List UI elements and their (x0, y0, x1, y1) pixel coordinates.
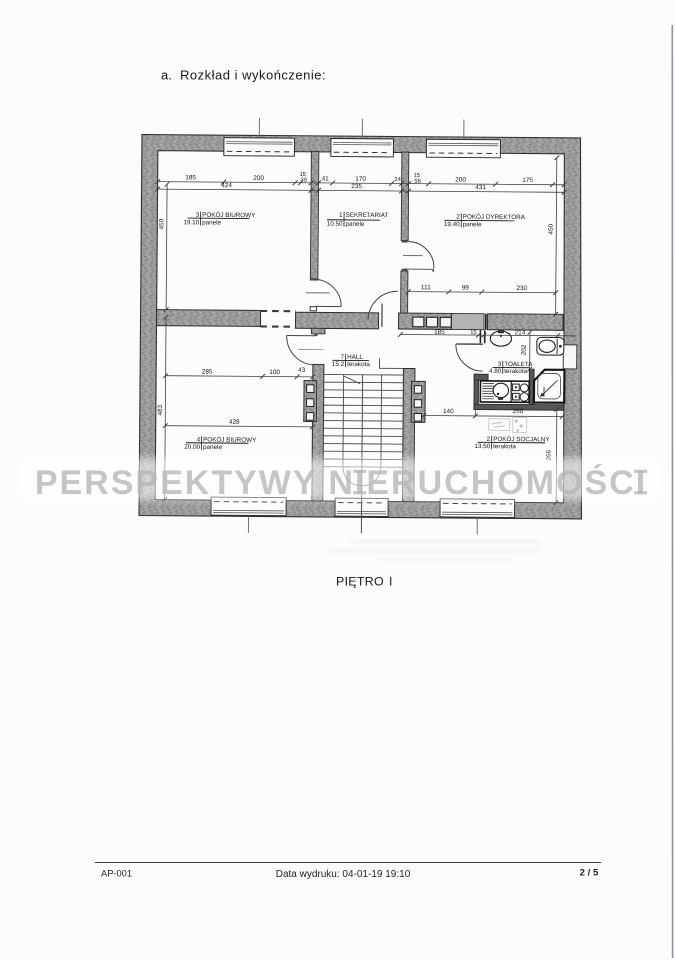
svg-text:140: 140 (443, 408, 454, 415)
svg-text:terakota: terakota (347, 361, 370, 368)
svg-text:POKÓJ BIUROWY: POKÓJ BIUROWY (202, 210, 256, 219)
svg-text:285: 285 (202, 368, 213, 375)
svg-text:panele: panele (463, 221, 482, 228)
svg-text:99: 99 (462, 285, 470, 292)
svg-text:POKÓJ BIUROWY: POKÓJ BIUROWY (203, 434, 257, 443)
svg-text:13.50: 13.50 (474, 443, 490, 450)
svg-text:POKÓJ SOCJALNY: POKÓJ SOCJALNY (493, 434, 550, 443)
svg-text:230: 230 (516, 285, 527, 292)
svg-text:terakota: terakota (493, 443, 516, 450)
svg-text:235: 235 (351, 183, 362, 190)
svg-text:450: 450 (548, 223, 555, 234)
svg-text:terakota: terakota (504, 368, 527, 375)
svg-text:a.: a. (161, 68, 172, 83)
svg-text:10.50: 10.50 (327, 221, 343, 228)
svg-text:483: 483 (157, 404, 164, 415)
svg-text:450: 450 (158, 218, 165, 229)
svg-text:1: 1 (339, 212, 343, 219)
svg-text:170: 170 (355, 176, 366, 183)
svg-text:428: 428 (229, 419, 240, 426)
svg-text:200: 200 (253, 175, 264, 182)
svg-text:19.40: 19.40 (444, 221, 460, 228)
svg-text:15.2: 15.2 (332, 361, 345, 368)
svg-text:185: 185 (434, 329, 445, 336)
svg-text:111: 111 (421, 284, 431, 291)
svg-text:PERSPEKTYWY NIERUCHOMOŚCI: PERSPEKTYWY NIERUCHOMOŚCI (35, 464, 647, 502)
svg-text:20.00: 20.00 (184, 444, 200, 451)
svg-text:panele: panele (345, 221, 364, 228)
svg-text:43: 43 (298, 367, 306, 374)
svg-text:7: 7 (341, 354, 345, 361)
svg-text:424: 424 (221, 182, 232, 189)
svg-text:HALL: HALL (347, 354, 363, 361)
svg-text:214: 214 (515, 329, 526, 336)
svg-text:19.10: 19.10 (183, 219, 199, 226)
svg-text:185: 185 (185, 174, 196, 181)
svg-text:41: 41 (322, 175, 330, 182)
svg-text:Data wydruku: 04-01-19 19:10: Data wydruku: 04-01-19 19:10 (276, 869, 411, 880)
svg-text:panele: panele (203, 444, 222, 451)
svg-text:250: 250 (512, 408, 523, 415)
svg-text:Rozkład i wykończenie:: Rozkład i wykończenie: (180, 68, 326, 83)
svg-text:24: 24 (394, 177, 401, 183)
svg-text:2 / 5: 2 / 5 (580, 868, 599, 879)
svg-text:175: 175 (522, 177, 533, 184)
svg-text:3: 3 (498, 361, 502, 368)
svg-text:2: 2 (487, 436, 491, 443)
svg-text:4.80: 4.80 (489, 368, 502, 375)
svg-text:SEKRETARIAT: SEKRETARIAT (346, 212, 389, 219)
svg-text:AP-001: AP-001 (101, 869, 132, 879)
svg-text:panele: panele (202, 219, 221, 226)
svg-text:200: 200 (455, 176, 466, 183)
svg-text:2: 2 (456, 214, 460, 221)
svg-text:15: 15 (470, 330, 477, 336)
svg-text:39: 39 (300, 178, 307, 184)
svg-text:202: 202 (521, 344, 528, 355)
svg-text:431: 431 (475, 184, 486, 191)
svg-text:56: 56 (414, 179, 421, 185)
svg-text:100: 100 (269, 369, 280, 376)
